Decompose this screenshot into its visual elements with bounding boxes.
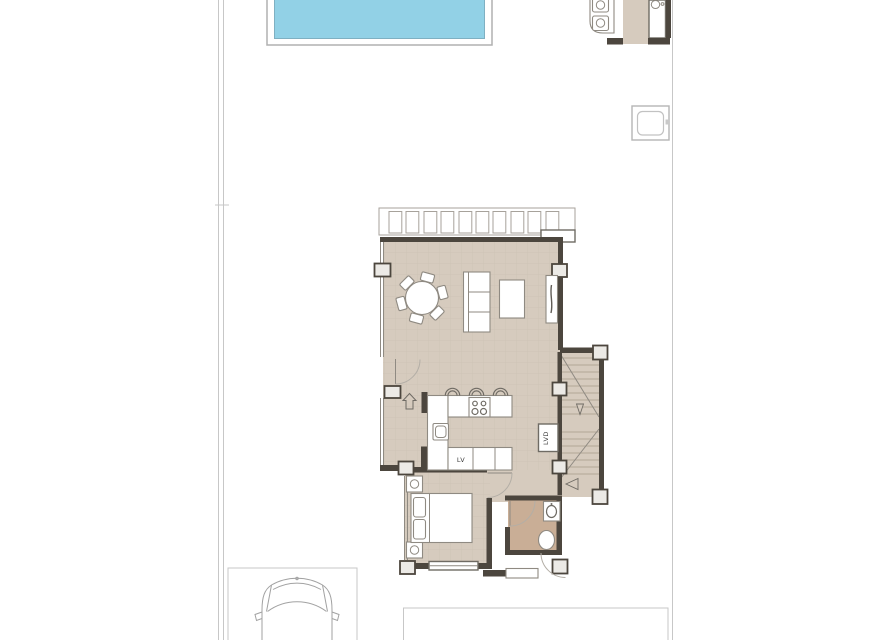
outdoor-kitchen-wall	[648, 38, 670, 45]
pillow	[414, 520, 426, 540]
wall-pier	[400, 561, 415, 574]
nightstand	[407, 542, 423, 558]
pillow	[414, 498, 426, 518]
coffee-table	[500, 280, 525, 318]
outdoor-kitchen-path	[623, 0, 649, 44]
wall-bath-bottom	[505, 550, 562, 555]
car-mirrors	[255, 612, 339, 621]
wall-bath-top	[505, 496, 562, 501]
wall-top	[380, 237, 563, 242]
grill-burner-module	[593, 0, 609, 12]
wall-pier	[375, 264, 391, 277]
wall-kitchen-stub	[422, 392, 428, 413]
floor-plan-canvas: LV LVD	[0, 0, 880, 640]
outdoor-kitchen-wall	[607, 38, 623, 45]
dining-table	[406, 282, 439, 315]
outdoor-kitchen	[590, 0, 671, 45]
double-bed	[411, 494, 472, 543]
wall-living-right	[558, 242, 563, 350]
car-roof	[273, 583, 321, 589]
washbasin	[544, 502, 561, 522]
toilet	[539, 531, 555, 550]
wall-pier	[553, 560, 568, 574]
car-windshield	[268, 602, 327, 612]
wall-pier	[553, 383, 567, 396]
grill-burner-module	[593, 16, 609, 31]
pool-water	[275, 0, 485, 39]
sofa	[464, 272, 491, 332]
entry-step	[506, 569, 538, 579]
wall-house-right	[599, 350, 604, 496]
wall-pier	[593, 490, 608, 505]
terrace-glazing	[379, 208, 575, 242]
tv-icon	[551, 285, 552, 313]
dishwasher-label: LV	[457, 456, 465, 464]
cooktop	[469, 398, 490, 418]
car	[255, 577, 339, 640]
parking	[228, 568, 357, 640]
patio	[404, 608, 669, 640]
wall-pier	[553, 461, 567, 474]
nightstand	[407, 476, 423, 492]
tv-unit	[546, 276, 558, 324]
outdoor-kitchen-wall	[666, 0, 671, 38]
kitchen-sink	[433, 424, 449, 441]
wall-porch-bottom	[483, 570, 507, 577]
wall-pier	[385, 386, 401, 398]
laundry-closet: LVD	[539, 424, 559, 452]
wall-pier	[593, 346, 608, 360]
washing-machine-label: LVD	[542, 431, 550, 445]
utility-box-latch	[666, 120, 670, 125]
swimming-pool	[267, 0, 492, 45]
wall-bedroom-right	[487, 498, 493, 569]
utility-box	[632, 106, 669, 140]
car-pillars	[267, 585, 328, 612]
wall-pier	[399, 462, 414, 475]
floor-plan-drawing: LV LVD	[0, 0, 880, 640]
